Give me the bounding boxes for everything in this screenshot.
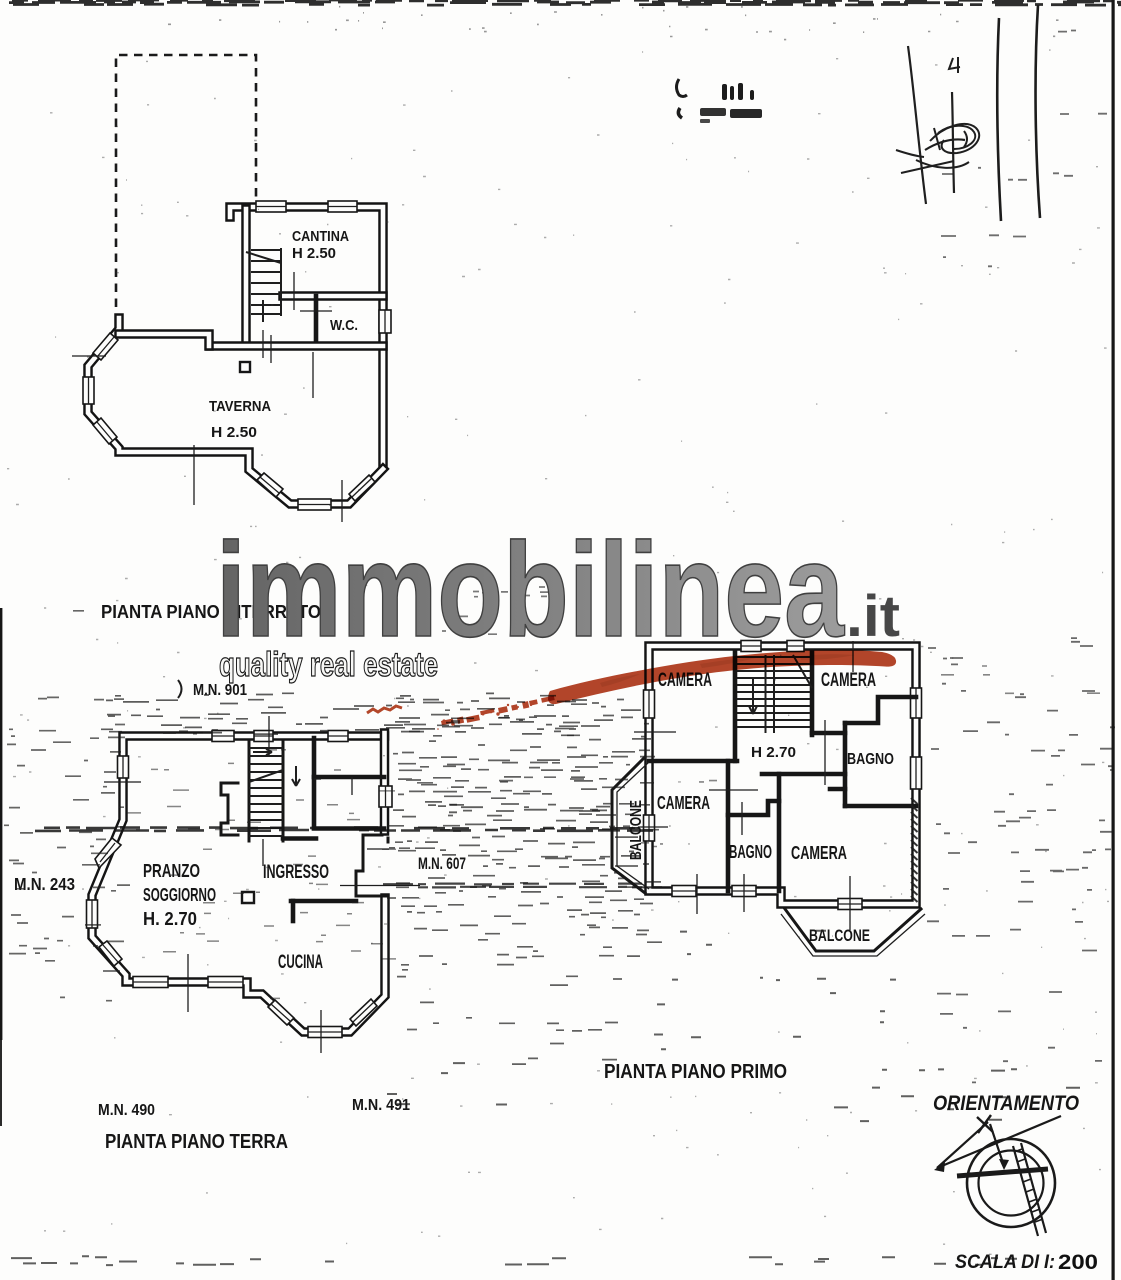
svg-text:H. 2.70: H. 2.70 xyxy=(143,909,197,929)
svg-text:BAGNO: BAGNO xyxy=(847,751,894,768)
svg-text:BALCONE: BALCONE xyxy=(809,926,870,945)
svg-text:CANTINA: CANTINA xyxy=(292,229,349,245)
svg-text:H 2.70: H 2.70 xyxy=(751,744,796,761)
svg-text:BAGNO: BAGNO xyxy=(729,842,772,862)
svg-text:W.C.: W.C. xyxy=(330,317,358,334)
svg-text:quality real estate: quality real estate xyxy=(219,646,438,684)
svg-text:M.N. 490: M.N. 490 xyxy=(98,1102,155,1119)
svg-text:TAVERNA: TAVERNA xyxy=(209,398,271,415)
svg-text:CAMERA: CAMERA xyxy=(821,670,876,691)
svg-text:CAMERA: CAMERA xyxy=(791,843,847,863)
svg-text:CUCINA: CUCINA xyxy=(278,952,323,973)
svg-text:200: 200 xyxy=(1058,1251,1098,1274)
svg-text:ORIENTAMENTO: ORIENTAMENTO xyxy=(933,1092,1079,1115)
svg-text:PIANTA PIANO PRIMO: PIANTA PIANO PRIMO xyxy=(604,1061,787,1083)
svg-text:SCALA DI I:: SCALA DI I: xyxy=(955,1252,1055,1273)
svg-text:M.N. 901: M.N. 901 xyxy=(193,682,247,699)
svg-text:CAMERA: CAMERA xyxy=(657,793,710,813)
svg-text:M.N. 243: M.N. 243 xyxy=(14,874,75,894)
svg-text:H 2.50: H 2.50 xyxy=(211,425,257,441)
svg-text:M.N. 491: M.N. 491 xyxy=(352,1097,410,1114)
svg-text:PRANZO: PRANZO xyxy=(143,861,200,881)
svg-text:.it: .it xyxy=(846,584,900,649)
svg-text:PIANTA PIANO TERRA: PIANTA PIANO TERRA xyxy=(105,1131,288,1153)
svg-text:H 2.50: H 2.50 xyxy=(292,246,336,262)
svg-text:M.N. 607: M.N. 607 xyxy=(418,855,466,873)
svg-text:immobilinea: immobilinea xyxy=(216,516,845,665)
